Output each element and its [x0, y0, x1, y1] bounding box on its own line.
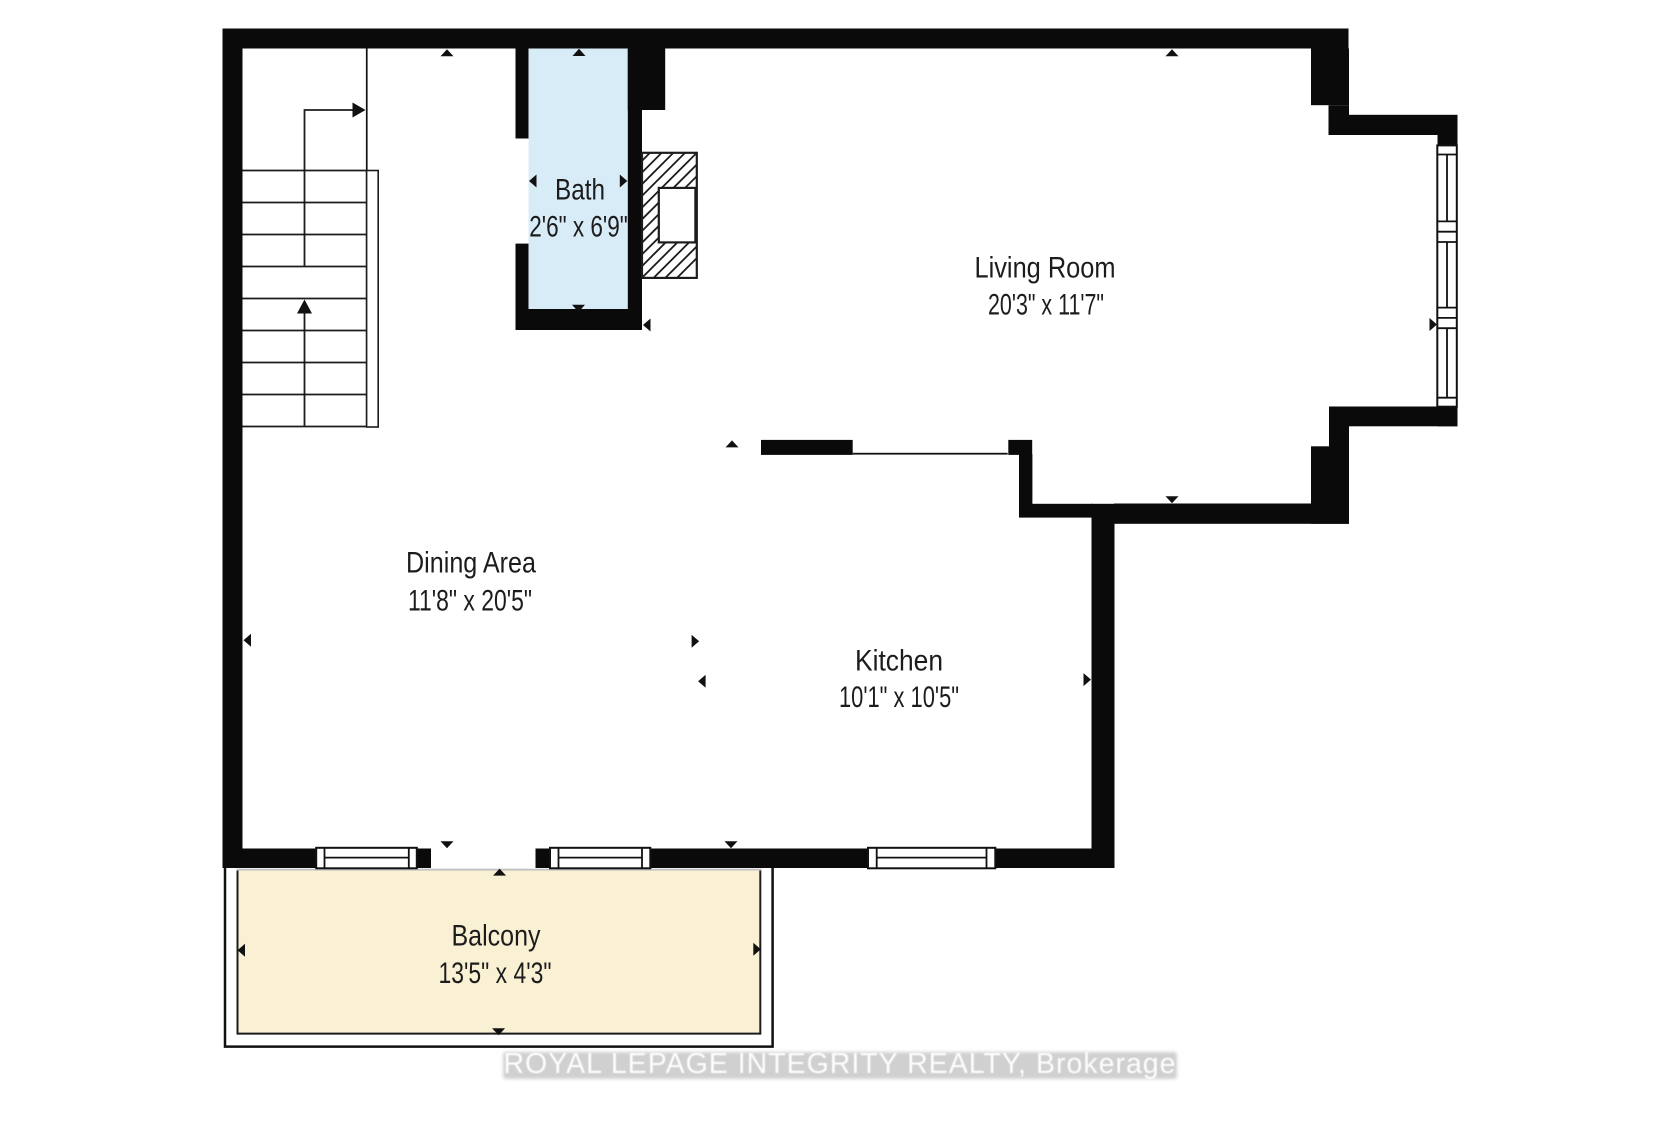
svg-text:Dining Area: Dining Area: [406, 547, 536, 580]
svg-text:Bath: Bath: [555, 174, 605, 207]
svg-text:13'5" x 4'3": 13'5" x 4'3": [439, 957, 552, 990]
svg-text:20'3" x 11'7": 20'3" x 11'7": [988, 289, 1104, 322]
svg-text:2'6" x 6'9": 2'6" x 6'9": [529, 211, 628, 244]
svg-text:10'1" x 10'5": 10'1" x 10'5": [839, 681, 959, 714]
svg-text:11'8" x 20'5": 11'8" x 20'5": [408, 585, 532, 618]
svg-text:Living Room: Living Room: [975, 252, 1116, 285]
svg-text:Kitchen: Kitchen: [855, 645, 943, 678]
svg-text:ROYAL LEPAGE INTEGRITY REALTY,: ROYAL LEPAGE INTEGRITY REALTY, Brokerage: [503, 1048, 1176, 1080]
svg-text:Balcony: Balcony: [452, 920, 541, 953]
